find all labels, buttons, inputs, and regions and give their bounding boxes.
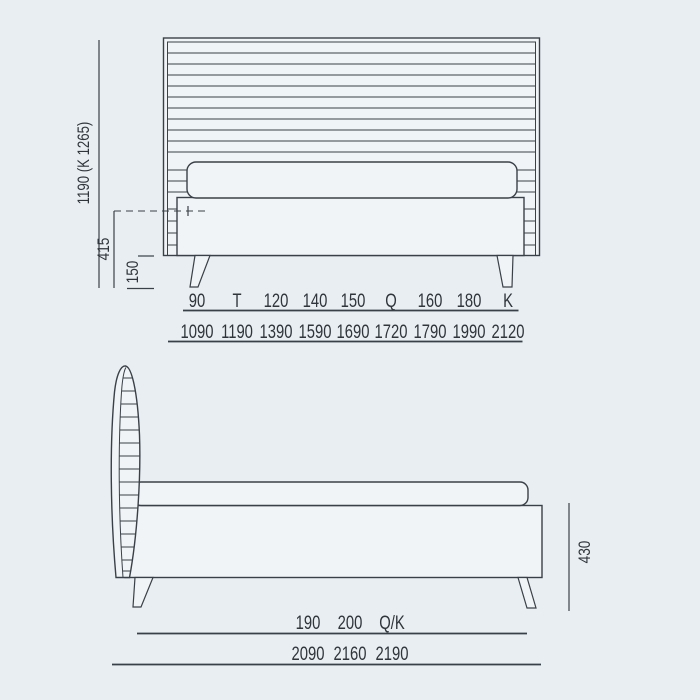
size-cell: 90 [189, 290, 205, 311]
length-cell: 2160 [334, 643, 367, 664]
width-cell: 1390 [260, 321, 293, 342]
width-cell: 1090 [181, 321, 214, 342]
size-cell: 140 [303, 290, 328, 311]
size-cell: 160 [418, 290, 443, 311]
size-cell: K [503, 290, 513, 311]
front-mattress [187, 162, 517, 198]
length-cell: 2090 [292, 643, 325, 664]
width-cell: 1690 [337, 321, 370, 342]
size-cell: 190 [296, 612, 321, 633]
size-cell: 200 [338, 612, 363, 633]
size-cell: 180 [457, 290, 482, 311]
front-size-table: 90 T 120 140 150 Q 160 180 K 1090 1190 1… [168, 290, 524, 342]
size-cell: 120 [264, 290, 289, 311]
front-leg-left [190, 256, 210, 288]
side-leg-left [133, 578, 153, 608]
width-cell: 2120 [492, 321, 525, 342]
size-cell: 150 [341, 290, 366, 311]
width-cell: 1590 [299, 321, 332, 342]
side-size-table: 190 200 Q/K 2090 2160 2190 [112, 612, 541, 664]
leg-height-label: 150 [124, 261, 143, 284]
side-bed-base [125, 506, 542, 578]
length-cell: 2190 [376, 643, 409, 664]
width-cell: 1720 [375, 321, 408, 342]
front-leg-right [497, 256, 513, 288]
side-dimensions: 430 [569, 503, 594, 611]
front-bed-base [177, 198, 524, 256]
width-cell: 1190 [221, 321, 253, 342]
size-cell: Q [385, 290, 397, 311]
front-view: 1190 (K 1265) 415 150 90 T 120 140 150 Q… [75, 38, 540, 342]
total-height-label: 1190 (K 1265) [75, 122, 94, 205]
width-cell: 1790 [414, 321, 447, 342]
frame-height-label: 415 [95, 238, 114, 261]
base-height-label: 430 [576, 541, 595, 564]
side-mattress [133, 482, 528, 506]
side-view: 430 190 200 Q/K 2090 2160 2190 [111, 366, 594, 665]
side-leg-right [518, 578, 536, 609]
size-cell: T [232, 290, 241, 311]
technical-drawing: 1190 (K 1265) 415 150 90 T 120 140 150 Q… [0, 0, 700, 700]
size-cell: Q/K [379, 612, 405, 633]
width-cell: 1990 [453, 321, 486, 342]
